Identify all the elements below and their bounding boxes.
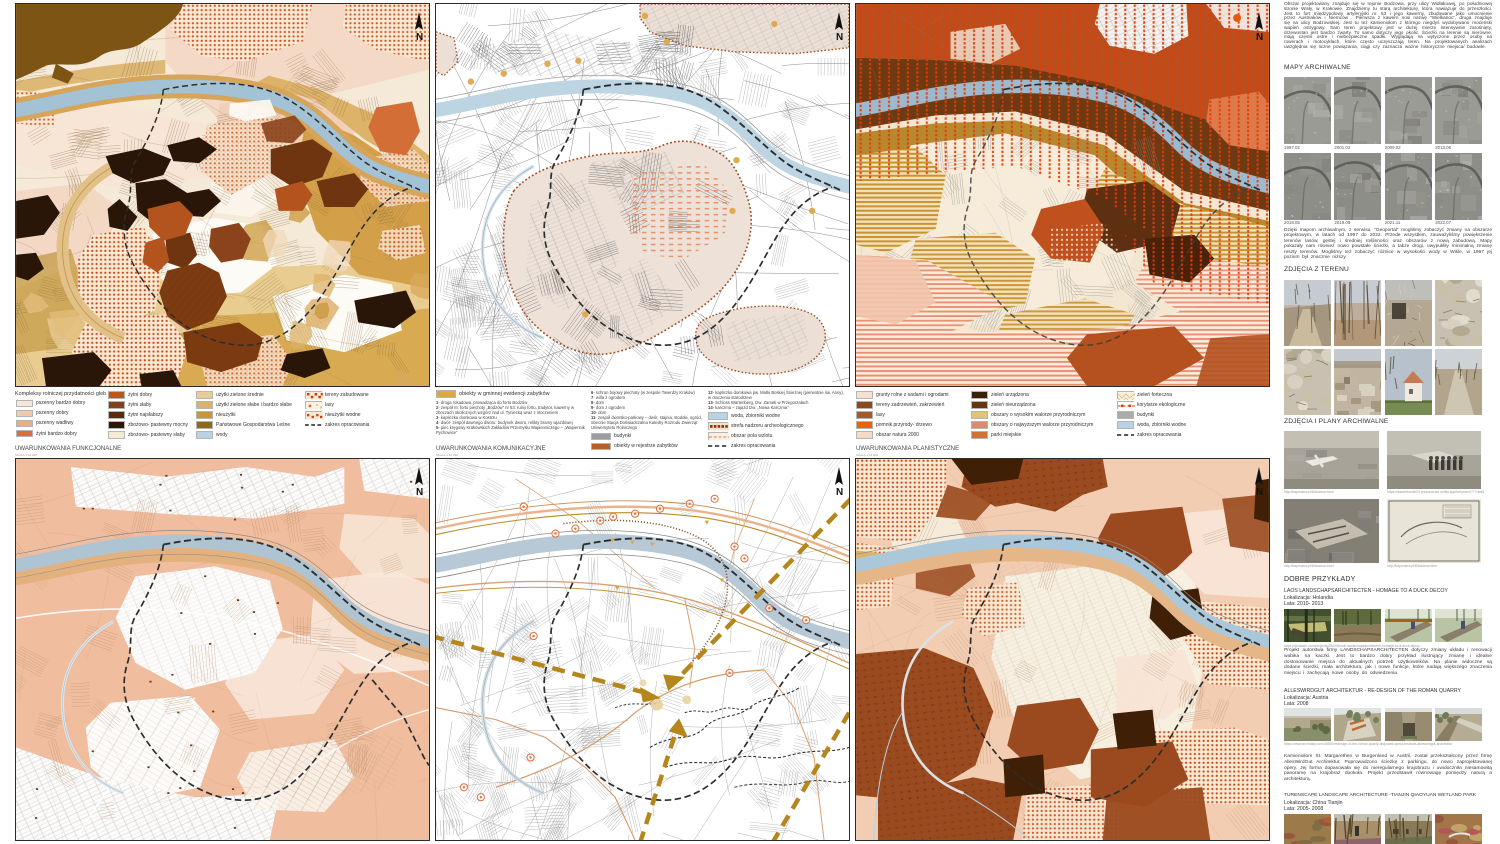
svg-text:N: N xyxy=(416,487,423,498)
svg-text:N: N xyxy=(416,32,423,43)
svg-text:N: N xyxy=(1256,487,1263,498)
svg-text:N: N xyxy=(836,487,843,498)
svg-text:N: N xyxy=(1256,32,1263,43)
svg-text:N: N xyxy=(836,32,843,43)
